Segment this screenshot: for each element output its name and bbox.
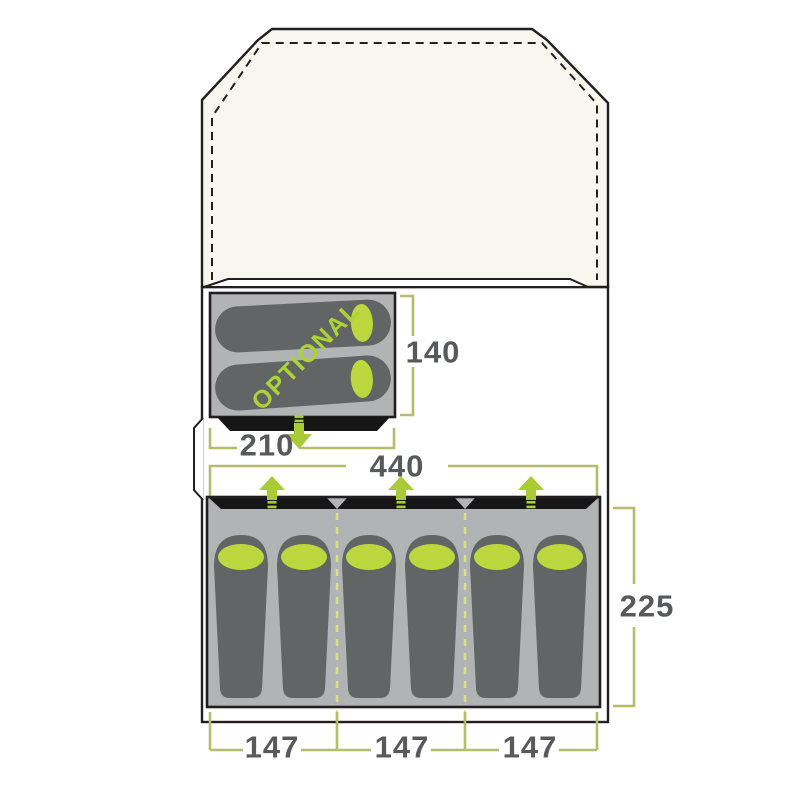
dim-main-depth: 225 (620, 589, 675, 624)
dim-berth-2: 147 (375, 730, 430, 765)
porch-outline (202, 29, 608, 287)
arrow-dash (527, 506, 536, 509)
dim-optional-width: 210 (240, 428, 295, 463)
arrow-dash (268, 501, 277, 504)
arrow-dash (295, 420, 304, 423)
arrow-dash (527, 501, 536, 504)
floorplan-svg: OPTIONAL 140 210 440 (0, 0, 800, 800)
dim-berth-3: 147 (503, 730, 558, 765)
pillow (409, 544, 455, 570)
pillow (474, 544, 520, 570)
side-tab (194, 418, 203, 500)
arrow-stem (294, 423, 304, 435)
dim-berth-1: 147 (245, 730, 300, 765)
arrow-stem (267, 488, 277, 500)
arrow-dash (397, 501, 406, 504)
pillow (346, 544, 392, 570)
tent-floorplan: OPTIONAL 140 210 440 (0, 0, 800, 800)
arrow-stem (396, 488, 406, 500)
arrow-dash (295, 416, 304, 419)
arrow-dash (397, 506, 406, 509)
pillow (218, 544, 264, 570)
pillow (537, 544, 583, 570)
dim-main-width: 440 (370, 449, 425, 484)
pillow (281, 544, 327, 570)
arrow-dash (268, 506, 277, 509)
porch-front-wall (204, 279, 588, 287)
dim-optional-depth: 140 (406, 335, 461, 370)
arrow-stem (526, 488, 536, 500)
